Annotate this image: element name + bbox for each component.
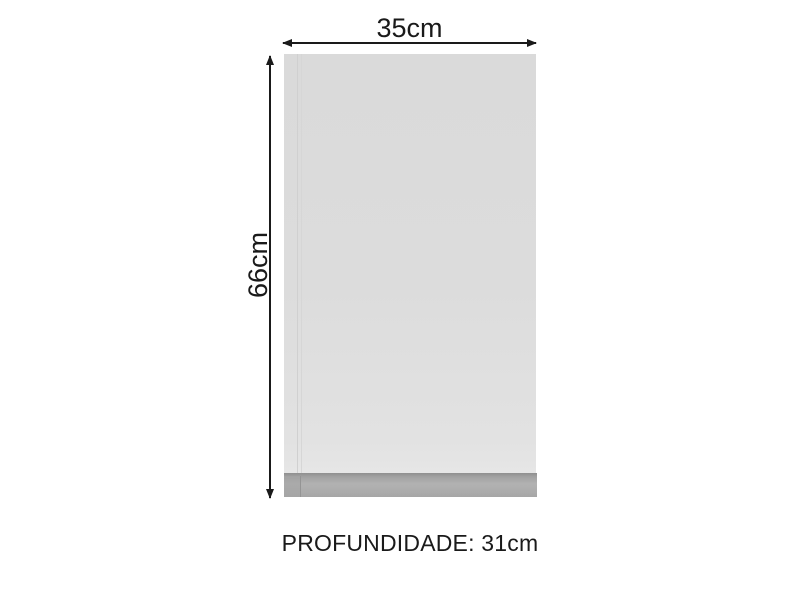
door-seam-line [301,54,302,473]
width-dimension-label: 35cm [283,13,536,43]
height-dimension-arrow [269,56,271,498]
depth-dimension-label: PROFUNDIDADE: 31cm [200,528,620,558]
cabinet-base-band [284,473,537,497]
cabinet-base-seam [300,476,301,497]
cabinet-door-panel [284,54,536,473]
cabinet-base-left-cap [284,476,300,497]
door-seam-line [297,54,298,473]
width-dimension-arrow [283,42,536,44]
product-diagram: 35cm 66cm PROFUNDIDADE: 31cm [0,0,810,590]
